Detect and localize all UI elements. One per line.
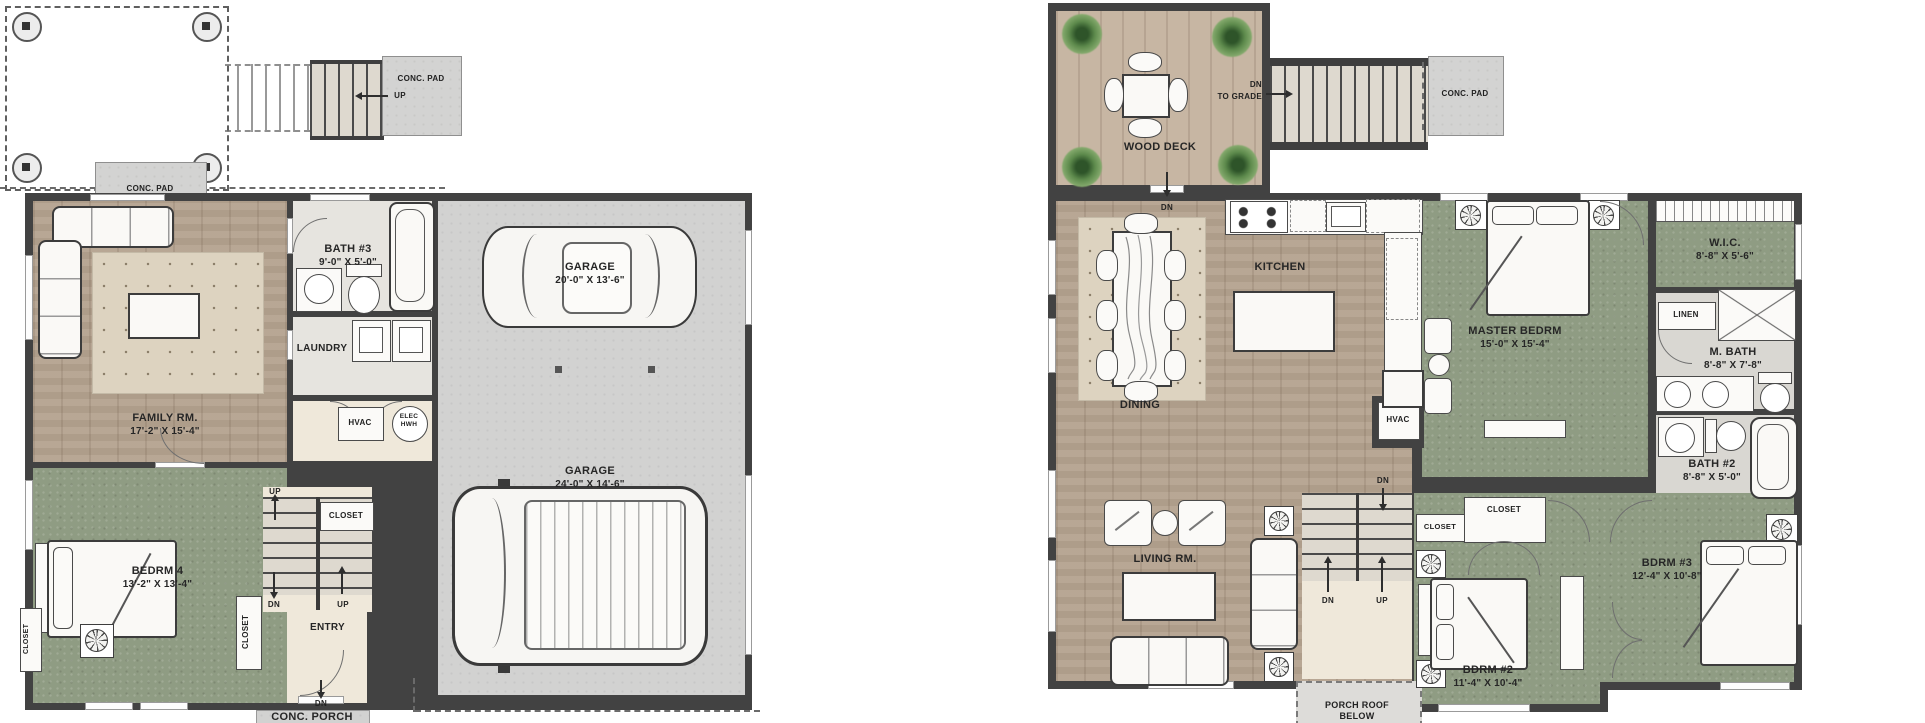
room-name: BATH #2 xyxy=(1662,458,1762,472)
van xyxy=(452,486,708,666)
room-name: GARAGE xyxy=(515,261,665,275)
room-name: BATH #3 xyxy=(293,243,403,257)
sofa xyxy=(1110,636,1229,686)
potted-plant xyxy=(1212,17,1252,57)
stairs-dn-label: DN xyxy=(1317,596,1339,606)
ceiling-fan xyxy=(80,624,114,658)
nightstand-fan xyxy=(1455,200,1487,230)
bed-pillow xyxy=(1436,584,1454,620)
side-table xyxy=(1428,354,1450,376)
stairs-up-label: UP xyxy=(331,600,355,610)
down-arrow-icon xyxy=(1379,504,1387,511)
deck-chair xyxy=(1104,78,1124,112)
dining-chair xyxy=(1096,250,1118,281)
window xyxy=(1048,318,1056,373)
bed-pillow xyxy=(53,547,73,629)
chair xyxy=(1424,318,1452,354)
closet-label: CLOSET xyxy=(1416,522,1464,531)
room-name: M. BATH xyxy=(1678,346,1788,360)
garage-floor-mark xyxy=(555,366,562,373)
hvac-label: HVAC xyxy=(338,418,382,428)
room-dims: 15'-0" X 15'-4" xyxy=(1455,339,1575,352)
chair xyxy=(1424,378,1452,414)
arrow-line xyxy=(1381,562,1383,592)
stairs-up-label: UP xyxy=(390,91,410,101)
up-arrow-icon xyxy=(271,494,279,501)
stair-rail xyxy=(1356,493,1359,581)
sink xyxy=(1702,381,1729,408)
garage1-label: GARAGE 20'-0" X 13'-6" xyxy=(515,261,665,287)
garage-door xyxy=(745,230,752,325)
linen-label: LINEN xyxy=(1658,310,1714,320)
window xyxy=(1720,682,1790,690)
toilet xyxy=(1716,421,1746,451)
window xyxy=(310,194,370,201)
family-room-label: FAMILY RM. 17'-2" X 15'-4" xyxy=(95,412,235,438)
room-name: BDRM #2 xyxy=(1428,664,1548,678)
room-dims: 17'-2" X 15'-4" xyxy=(95,426,235,439)
room-name: MASTER BEDRM xyxy=(1455,325,1575,339)
sink xyxy=(1665,423,1695,453)
dining-table xyxy=(1112,231,1172,387)
sink-basin xyxy=(1331,206,1361,227)
porch-roof-label-2: BELOW xyxy=(1300,711,1414,722)
closet-shelf xyxy=(1656,201,1794,222)
arrow-line xyxy=(1327,562,1329,592)
deck-stairs xyxy=(1270,58,1428,150)
dresser xyxy=(1484,420,1566,438)
potted-plant xyxy=(1062,14,1102,54)
dryer-drum xyxy=(399,327,423,353)
window xyxy=(1438,704,1530,712)
arrow-line xyxy=(274,500,276,520)
closet-label: CLOSET xyxy=(241,600,255,664)
up-arrow-icon xyxy=(338,566,346,573)
mbath-label: M. BATH 8'-8" X 7'-8" xyxy=(1678,346,1788,372)
bdrm3-label: BDRM #3 12'-4" X 10'-8" xyxy=(1608,557,1726,583)
armchair xyxy=(1178,500,1226,546)
entry-dn-label: DN xyxy=(310,699,332,709)
stairs-above-dashed xyxy=(225,64,310,132)
up-arrow-icon xyxy=(1324,556,1332,563)
sofa xyxy=(38,240,82,359)
kitchen-label: KITCHEN xyxy=(1230,261,1330,275)
dashed-line xyxy=(1422,62,1424,130)
room-dims: 8'-8" X 5'-0" xyxy=(1662,472,1762,485)
dresser xyxy=(1560,576,1584,670)
garage-floor-mark xyxy=(648,366,655,373)
stove xyxy=(1230,201,1288,233)
window xyxy=(85,702,133,710)
window xyxy=(1048,560,1056,632)
elec-hwh-label-2: HWH xyxy=(392,421,426,429)
refrigerator xyxy=(1382,370,1424,408)
upper-cabinet-dashed xyxy=(1366,199,1420,233)
dashed-line xyxy=(413,678,415,712)
window xyxy=(25,480,33,550)
window xyxy=(1048,470,1056,538)
ceiling-fan xyxy=(1264,652,1294,682)
toilet xyxy=(348,276,380,314)
window xyxy=(1048,240,1056,295)
up-arrow-icon xyxy=(1378,556,1386,563)
closet-label: CLOSET xyxy=(320,511,372,521)
window xyxy=(90,194,165,201)
arrow-line xyxy=(341,572,343,594)
bedrm4-label: BEDRM 4 13'-2" X 13'-4" xyxy=(90,565,225,591)
floor-plan-canvas: CONC. PAD UP CONC. PAD xyxy=(0,0,1925,723)
conc-pad-label: CONC. PAD xyxy=(384,74,458,84)
deck-chair xyxy=(1128,118,1162,138)
coffee-table xyxy=(128,293,200,339)
bed-pillow xyxy=(1492,206,1534,225)
dining-label: DINING xyxy=(1100,399,1180,413)
arrow-line xyxy=(1166,172,1168,192)
deck-chair xyxy=(1128,52,1162,72)
bath2-label: BATH #2 8'-8" X 5'-0" xyxy=(1662,458,1762,484)
stairs-dn-label: DN xyxy=(262,600,286,610)
bed-pillow xyxy=(1436,624,1454,660)
room-name: BEDRM 4 xyxy=(90,565,225,579)
room-dims: 20'-0" X 13'-6" xyxy=(515,275,665,288)
window xyxy=(25,255,33,340)
coffee-table xyxy=(1122,572,1216,621)
deck-table xyxy=(1122,74,1170,118)
window xyxy=(1795,224,1802,280)
conc-porch-label: CONC. PORCH xyxy=(250,711,374,723)
armchair xyxy=(1104,500,1152,546)
stairs-up-label: UP xyxy=(1371,596,1393,606)
up-arrow-icon xyxy=(355,92,362,100)
hvac-label: HVAC xyxy=(1378,415,1418,425)
potted-plant xyxy=(1062,147,1102,187)
garage-door xyxy=(745,475,752,655)
conc-pad-label: CONC. PAD xyxy=(1430,89,1500,99)
wood-deck-label: WOOD DECK xyxy=(1100,141,1220,155)
bdrm2-label: BDRM #2 11'-4" X 10'-4" xyxy=(1428,664,1548,690)
room-name: GARAGE xyxy=(515,465,665,479)
right-arrow-icon xyxy=(1286,90,1293,98)
wic-label: W.I.C. 8'-8" X 5'-6" xyxy=(1660,237,1790,263)
room-dims: 8'-8" X 5'-6" xyxy=(1660,251,1790,264)
master-label: MASTER BEDRM 15'-0" X 15'-4" xyxy=(1455,325,1575,351)
dining-chair xyxy=(1164,250,1186,281)
porch-roof-label-1: PORCH ROOF xyxy=(1300,700,1414,711)
arrow-line xyxy=(273,572,275,594)
bdrm2-closet xyxy=(1464,497,1546,543)
bed-pillow xyxy=(1536,206,1578,225)
room-name: BDRM #3 xyxy=(1608,557,1726,571)
dining-chair xyxy=(1164,350,1186,381)
closet-label: CLOSET xyxy=(1464,505,1544,515)
down-arrow-icon xyxy=(1163,190,1171,197)
deck-dn-label: DN xyxy=(1156,203,1178,213)
sink xyxy=(1664,381,1691,408)
up-arrow-line xyxy=(362,95,388,97)
side-table xyxy=(1152,510,1178,536)
room-dims: 13'-2" X 13'-4" xyxy=(90,579,225,592)
deck-post-icon xyxy=(12,153,42,183)
dining-chair xyxy=(1164,300,1186,331)
deck-post-icon xyxy=(12,12,42,42)
dining-chair xyxy=(1096,300,1118,331)
shower xyxy=(1718,289,1796,341)
elec-hwh-label-1: ELEC xyxy=(392,413,426,421)
upper-level-plan: WOOD DECK CONC. PAD DN TO GRADE HVAC xyxy=(960,0,1925,723)
room-dims: 24'-0" X 14'-6" xyxy=(515,479,665,492)
bath3-label: BATH #3 9'-0" X 5'-0" xyxy=(293,243,403,269)
arrow-line xyxy=(1266,93,1288,95)
room-dims: 11'-4" X 10'-4" xyxy=(1428,678,1548,691)
room-dims: 12'-4" X 10'-8" xyxy=(1608,571,1726,584)
sink xyxy=(304,274,334,304)
dining-chair xyxy=(1124,213,1158,234)
room-dims: 9'-0" X 5'-0" xyxy=(293,257,403,270)
room-name: FAMILY RM. xyxy=(95,412,235,426)
lower-level-plan: CONC. PAD UP CONC. PAD xyxy=(0,0,960,723)
exterior-stairs xyxy=(310,60,384,140)
garage2-label: GARAGE 24'-0" X 14'-6" xyxy=(515,465,665,491)
closet-label: CLOSET xyxy=(23,611,37,667)
dn-to-grade-label-1: DN xyxy=(1200,80,1262,90)
deck-chair xyxy=(1168,78,1188,112)
ceiling-fan xyxy=(1416,550,1446,578)
toilet xyxy=(1760,383,1790,413)
upper-cabinet-dashed xyxy=(1386,238,1418,320)
sofa-chaise xyxy=(1250,538,1298,650)
dining-chair xyxy=(1096,350,1118,381)
dashed-line xyxy=(415,710,760,712)
ceiling-fan xyxy=(1264,506,1294,536)
stairs-dn-label: DN xyxy=(1372,476,1394,486)
window xyxy=(140,702,188,710)
deck-post-icon xyxy=(192,12,222,42)
kitchen-island xyxy=(1233,291,1335,352)
potted-plant xyxy=(1218,145,1258,185)
wood-grain xyxy=(1114,233,1166,381)
entry-label: ENTRY xyxy=(285,622,370,635)
bed-pillow xyxy=(1748,546,1786,565)
washer-drum xyxy=(359,327,383,353)
living-label: LIVING RM. xyxy=(1120,553,1210,567)
down-arrow-icon xyxy=(270,592,278,599)
room-name: W.I.C. xyxy=(1660,237,1790,251)
down-arrow-icon xyxy=(317,692,325,699)
laundry-label: LAUNDRY xyxy=(282,343,362,356)
dn-to-grade-label-2: TO GRADE xyxy=(1200,92,1262,102)
room-dims: 8'-8" X 7'-8" xyxy=(1678,360,1788,373)
upper-cabinet-dashed xyxy=(1290,200,1326,232)
